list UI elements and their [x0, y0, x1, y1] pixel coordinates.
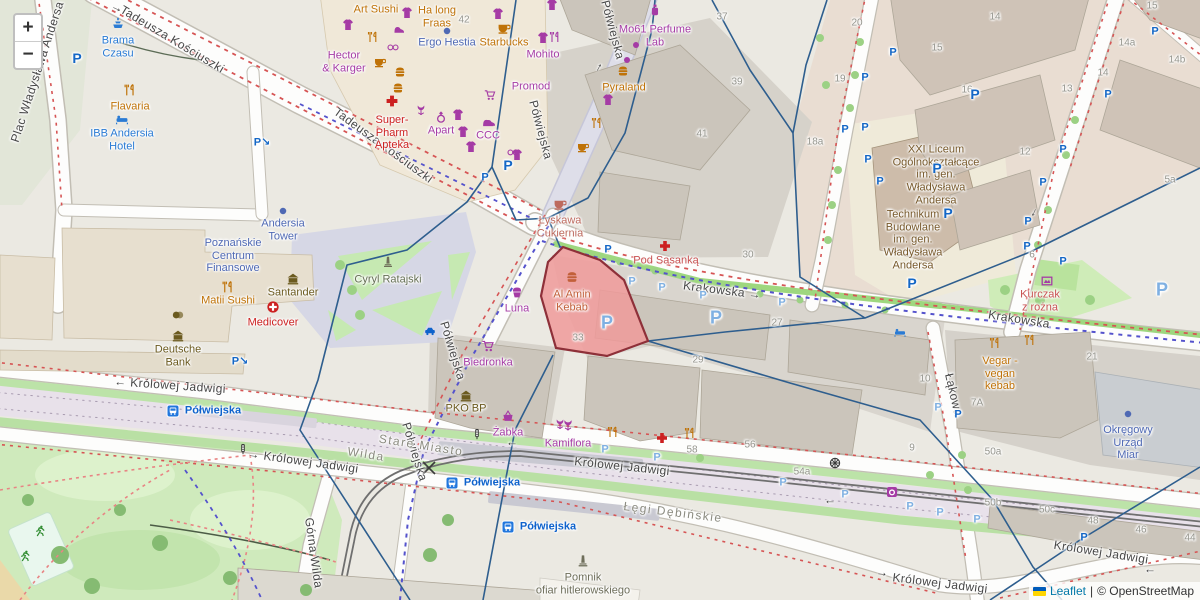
tshirt-icon [492, 8, 504, 20]
money-icon [172, 309, 184, 321]
laundry-icon [886, 486, 898, 498]
cup-icon [374, 56, 386, 68]
basket-icon [502, 410, 515, 423]
bank-icon [172, 330, 185, 343]
burger-icon [566, 271, 579, 284]
fountain-icon [112, 17, 125, 30]
tshirt-icon [401, 7, 413, 19]
tulip-icon [415, 104, 427, 116]
tshirt-icon [546, 0, 558, 11]
zoom-out-button[interactable]: − [15, 42, 41, 68]
ukraine-flag-icon [1033, 587, 1046, 596]
attribution-bar: Leaflet | © OpenStreetMap [1029, 582, 1200, 600]
zoom-in-button[interactable]: + [15, 15, 41, 42]
burger-icon [617, 65, 629, 77]
tshirt-icon [457, 126, 469, 138]
tshirt-icon [452, 109, 464, 121]
dot-icon [630, 39, 642, 51]
cutlery-icon [549, 31, 561, 43]
tlight-icon [237, 443, 249, 455]
monument-icon [577, 555, 590, 568]
dot-icon [441, 25, 454, 38]
leaflet-link[interactable]: Leaflet [1050, 584, 1086, 598]
tshirt-icon [465, 141, 477, 153]
taxi-icon [424, 325, 436, 337]
cutlery-icon [684, 427, 696, 439]
wheel-icon [829, 457, 841, 469]
glasses-icon [387, 41, 399, 53]
perfume-icon [649, 4, 662, 17]
bed-icon [116, 113, 129, 126]
tram-stop-icon [447, 478, 458, 489]
cup-icon [498, 22, 511, 35]
bank-icon [460, 390, 473, 403]
cutlery-icon [222, 281, 235, 294]
burger-icon [394, 66, 406, 78]
runner-icon [34, 525, 46, 537]
cart-icon [482, 340, 495, 353]
cross-icon [656, 432, 668, 444]
cutlery-icon [124, 84, 137, 97]
cutlery-icon [607, 426, 619, 438]
tram-stop-icon [503, 522, 514, 533]
dot-icon [621, 54, 633, 66]
zoom-control: + − [13, 13, 43, 70]
dot-icon [1122, 408, 1135, 421]
artwork-icon [1041, 275, 1053, 287]
attribution-separator: | [1090, 584, 1093, 598]
cutlery-icon [989, 337, 1001, 349]
tulip-icon [554, 418, 566, 430]
tshirt-icon [342, 19, 354, 31]
shoe-icon [393, 23, 405, 35]
cup-icon [554, 198, 567, 211]
cupcake-icon [511, 286, 524, 299]
cutlery-icon [591, 117, 603, 129]
cart-icon [484, 89, 496, 101]
map-canvas[interactable]: Plac Władysława AndersaTadeusza Kościusz… [0, 0, 1200, 600]
burger-icon [392, 82, 404, 94]
dot-icon [277, 205, 290, 218]
monument-icon [382, 256, 394, 268]
cutlery-icon [1024, 334, 1036, 346]
cross-icon [659, 240, 671, 252]
tshirt-icon [602, 94, 614, 106]
cutlery-icon [367, 31, 379, 43]
runner-icon [19, 550, 31, 562]
bank-icon [287, 273, 300, 286]
cross-icon [386, 95, 399, 108]
osm-copyright: © OpenStreetMap [1097, 584, 1194, 598]
clinic-icon [267, 301, 280, 314]
ring-icon [435, 111, 448, 124]
bed-icon [894, 326, 906, 338]
glasses-icon [507, 146, 519, 158]
cup-icon [577, 141, 589, 153]
tshirt-icon [537, 32, 549, 44]
shoe-icon [484, 116, 496, 128]
tram-stop-icon [168, 406, 179, 417]
tlight-icon [471, 428, 483, 440]
map-tiles [0, 0, 1200, 600]
